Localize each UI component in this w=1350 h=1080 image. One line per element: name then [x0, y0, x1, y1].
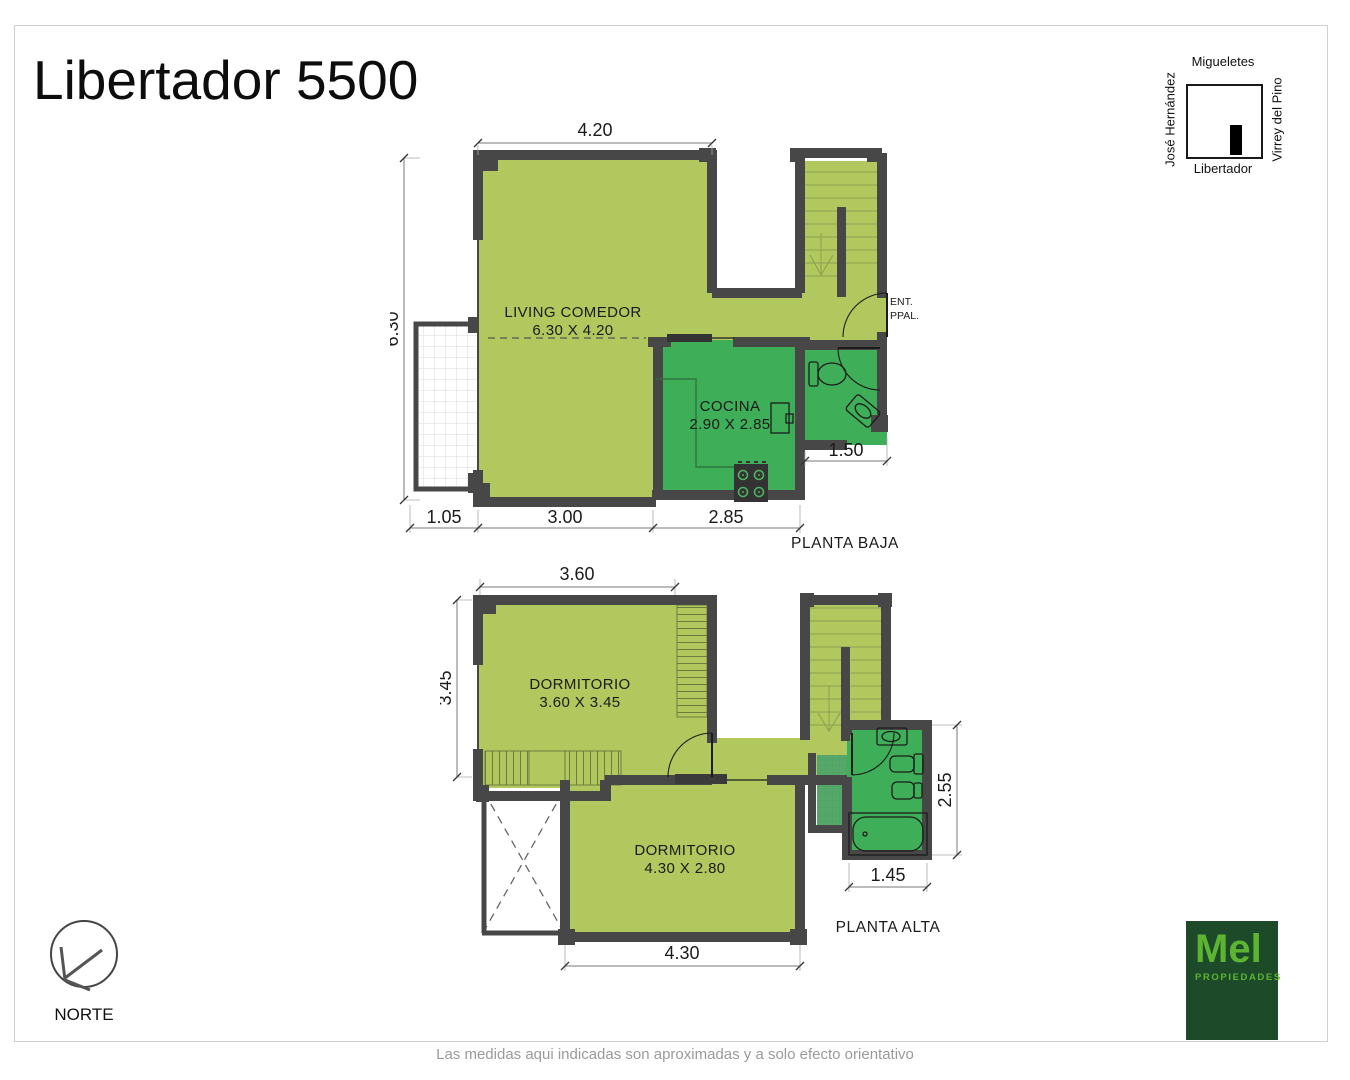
location-map-block — [1186, 84, 1263, 159]
dimension-top-alta: 3.60 — [476, 564, 679, 595]
agency-logo: Mel PROPIEDADES — [1186, 921, 1278, 1040]
planta-baja-label: PLANTA BAJA — [791, 535, 899, 552]
svg-text:4.20: 4.20 — [577, 120, 612, 140]
norte-label: NORTE — [34, 1005, 134, 1025]
dimension-bath-height: 2.55 — [932, 721, 962, 859]
svg-text:2.55: 2.55 — [935, 772, 955, 807]
svg-text:2.85: 2.85 — [708, 507, 743, 527]
svg-text:1.50: 1.50 — [828, 440, 863, 460]
bathroom-alta-area — [847, 722, 928, 858]
street-label-migueletes: Migueletes — [1164, 54, 1282, 69]
disclaimer-note: Las medidas aqui indicadas son aproximad… — [0, 1046, 1350, 1063]
cocina-label: COCINA — [700, 398, 761, 415]
north-compass-icon — [44, 914, 128, 998]
svg-text:3.60: 3.60 — [559, 564, 594, 584]
closet — [677, 605, 707, 717]
svg-text:4.30: 4.30 — [664, 943, 699, 963]
sliding-door-dormitorio2 — [675, 774, 727, 784]
svg-text:3.00: 3.00 — [547, 507, 582, 527]
property-marker — [1230, 125, 1242, 155]
planta-baja-drawing: 4.20 6.30 1.05 3.00 2.85 1.50 LIVING COM… — [390, 115, 935, 560]
dormitorio-2-label: DORMITORIO — [634, 842, 735, 859]
dormitorio-1-label: DORMITORIO — [529, 676, 630, 693]
living-label: LIVING COMEDOR — [504, 304, 641, 321]
entrance-label-2: PPAL. — [890, 310, 919, 322]
agency-logo-brand: Mel — [1195, 929, 1278, 969]
svg-text:6.30: 6.30 — [390, 311, 402, 346]
balcony — [416, 317, 478, 493]
dormitorio-1-size: 3.60 X 3.45 — [539, 694, 620, 711]
dimension-top: 4.20 — [474, 120, 716, 155]
dimension-left-alta: 3.45 — [440, 596, 472, 781]
dimension-bath-width: 1.45 — [845, 863, 931, 892]
sliding-door — [667, 334, 712, 342]
stove-icon — [734, 462, 768, 502]
svg-text:1.45: 1.45 — [870, 865, 905, 885]
entrance-label-1: ENT. — [890, 296, 913, 308]
dormitorio-2-size: 4.30 X 2.80 — [644, 860, 725, 877]
street-label-jose-hernandez: José Hernández — [1163, 64, 1178, 176]
dimension-bottom-alta: 4.30 — [561, 943, 804, 971]
void-area — [482, 790, 565, 933]
page-title: Libertador 5500 — [33, 48, 418, 112]
planta-alta-label: PLANTA ALTA — [836, 919, 941, 936]
svg-text:3.45: 3.45 — [440, 670, 455, 705]
agency-logo-subtitle: PROPIEDADES — [1195, 972, 1278, 983]
planta-alta-drawing: 3.60 3.45 4.30 1.45 2.55 DORMITORIO 3.60… — [440, 555, 980, 985]
cocina-size: 2.90 X 2.85 — [689, 416, 770, 433]
dimension-bottom: 1.05 3.00 2.85 — [406, 505, 804, 533]
svg-text:1.05: 1.05 — [426, 507, 461, 527]
street-label-virrey-del-pino: Virrey del Pino — [1270, 64, 1285, 176]
living-size: 6.30 X 4.20 — [532, 322, 613, 339]
street-label-libertador: Libertador — [1164, 161, 1282, 176]
